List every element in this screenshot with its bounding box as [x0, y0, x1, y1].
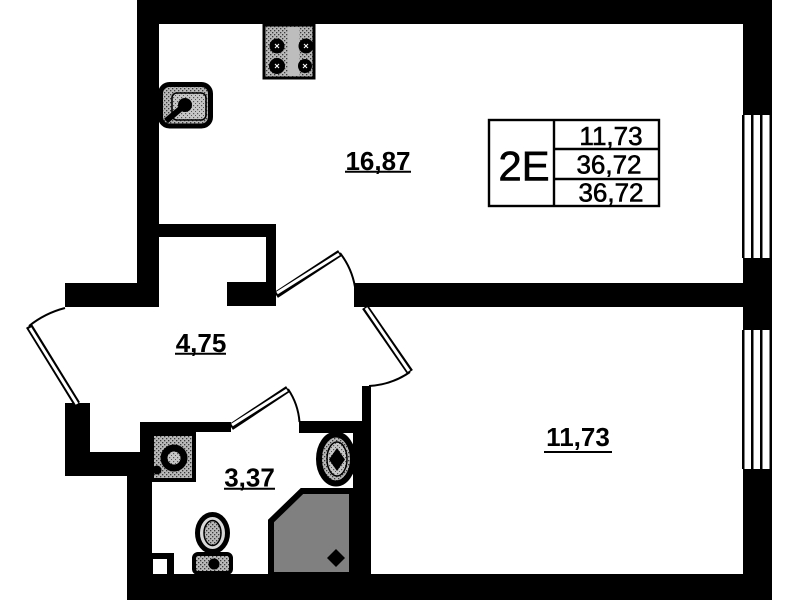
svg-text:11,73: 11,73 [579, 121, 642, 151]
svg-text:36,72: 36,72 [576, 150, 641, 180]
svg-text:11,73: 11,73 [546, 422, 610, 452]
svg-text:36,72: 36,72 [578, 178, 643, 208]
svg-text:2Е: 2Е [498, 143, 549, 190]
